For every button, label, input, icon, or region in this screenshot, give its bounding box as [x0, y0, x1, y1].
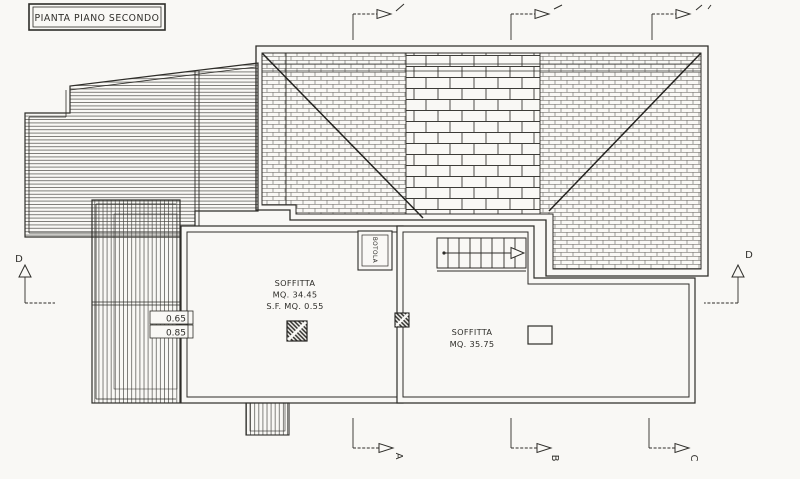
room-left-name: SOFFITTA — [275, 278, 316, 288]
flue-shared-wall — [395, 313, 409, 327]
section-label-b: B — [549, 455, 560, 462]
room-left-area: MQ. 34.45 — [273, 290, 318, 300]
roof-window — [528, 326, 552, 344]
dim-label-top: 0.65 — [166, 315, 186, 325]
room-right-area: MQ. 35.75 — [450, 339, 495, 349]
plan-title: PIANTA PIANO SECONDO — [35, 13, 160, 24]
botola-box: BOTOLA — [358, 231, 392, 270]
chimney-stub — [246, 403, 289, 435]
roof-slope-right — [540, 53, 701, 269]
room-left-sf: S.F. MQ. 0.55 — [266, 301, 323, 311]
section-label-a: A — [393, 453, 404, 460]
stairs — [437, 238, 526, 271]
title-box: PIANTA PIANO SECONDO — [29, 4, 165, 30]
section-label-c: C — [688, 455, 699, 462]
roof-slope-middle — [406, 53, 540, 214]
floor-plan-canvas: SOFFITTA MQ. 34.45 S.F. MQ. 0.55 BOTOLA … — [0, 0, 800, 479]
roof-slope-left — [262, 53, 406, 214]
botola-label: BOTOLA — [371, 237, 377, 263]
section-label-d-left: D — [15, 254, 23, 265]
dim-label-bottom: 0.85 — [166, 329, 186, 339]
floor-plan: SOFFITTA MQ. 34.45 S.F. MQ. 0.55 BOTOLA … — [0, 0, 800, 479]
window-left-wall: 0.65 0.85 — [150, 311, 193, 339]
room-right-name: SOFFITTA — [452, 327, 493, 337]
terrace-lower-left — [92, 200, 180, 403]
skylight-hatch-left — [287, 321, 307, 341]
section-label-d-right: D — [745, 250, 753, 261]
